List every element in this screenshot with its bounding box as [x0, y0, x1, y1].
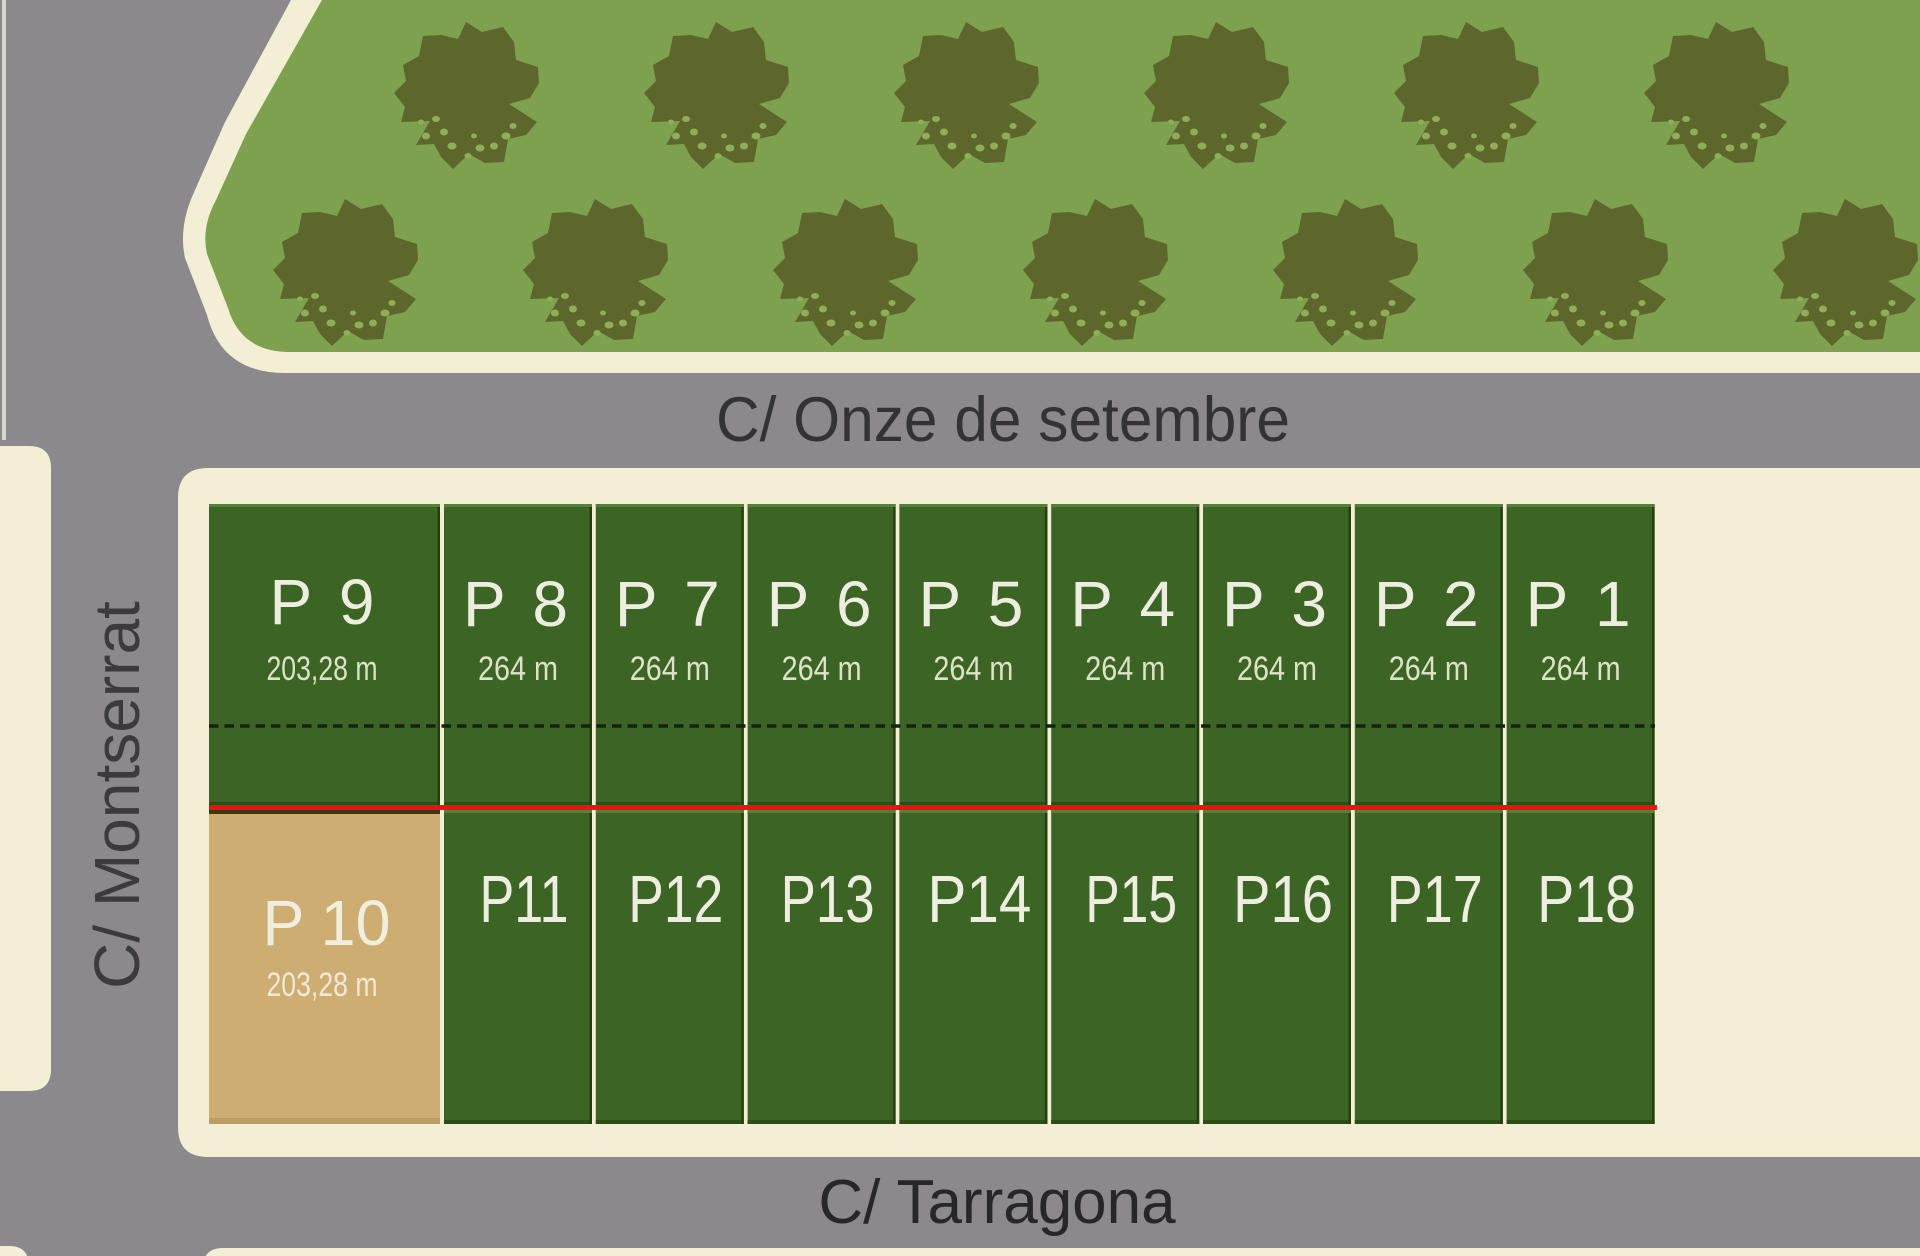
svg-text:P 9: P 9 — [270, 566, 380, 638]
svg-text:264 m: 264 m — [1389, 650, 1469, 688]
svg-text:P 6: P 6 — [767, 568, 877, 640]
svg-text:C/ Onze de setembre: C/ Onze de setembre — [716, 385, 1290, 455]
svg-text:P 4: P 4 — [1070, 568, 1180, 640]
svg-text:P 2: P 2 — [1374, 568, 1484, 640]
svg-text:P 7: P 7 — [615, 568, 725, 640]
svg-text:C/ Tarragona: C/ Tarragona — [818, 1168, 1176, 1237]
svg-text:264 m: 264 m — [1237, 650, 1317, 688]
svg-text:P17: P17 — [1387, 862, 1483, 937]
svg-text:P 5: P 5 — [918, 568, 1028, 640]
svg-text:264 m: 264 m — [782, 650, 862, 688]
svg-text:P 10: P 10 — [263, 887, 391, 959]
svg-text:P16: P16 — [1233, 862, 1333, 937]
svg-text:203,28 m: 203,28 m — [267, 650, 378, 688]
svg-text:P13: P13 — [781, 862, 875, 937]
svg-text:203,28 m: 203,28 m — [267, 966, 378, 1004]
svg-text:C/ Montserrat: C/ Montserrat — [81, 601, 153, 989]
svg-text:264 m: 264 m — [478, 650, 558, 688]
svg-text:P18: P18 — [1537, 862, 1636, 937]
svg-text:P14: P14 — [927, 862, 1031, 937]
svg-text:P 8: P 8 — [463, 568, 573, 640]
svg-text:P11: P11 — [480, 862, 569, 937]
svg-text:264 m: 264 m — [1085, 650, 1165, 688]
svg-text:P 3: P 3 — [1222, 568, 1332, 640]
svg-text:P15: P15 — [1085, 862, 1177, 937]
svg-text:P12: P12 — [628, 862, 723, 937]
svg-text:264 m: 264 m — [630, 650, 710, 688]
svg-text:P 1: P 1 — [1526, 568, 1636, 640]
svg-text:264 m: 264 m — [933, 650, 1013, 688]
svg-text:264 m: 264 m — [1541, 650, 1621, 688]
